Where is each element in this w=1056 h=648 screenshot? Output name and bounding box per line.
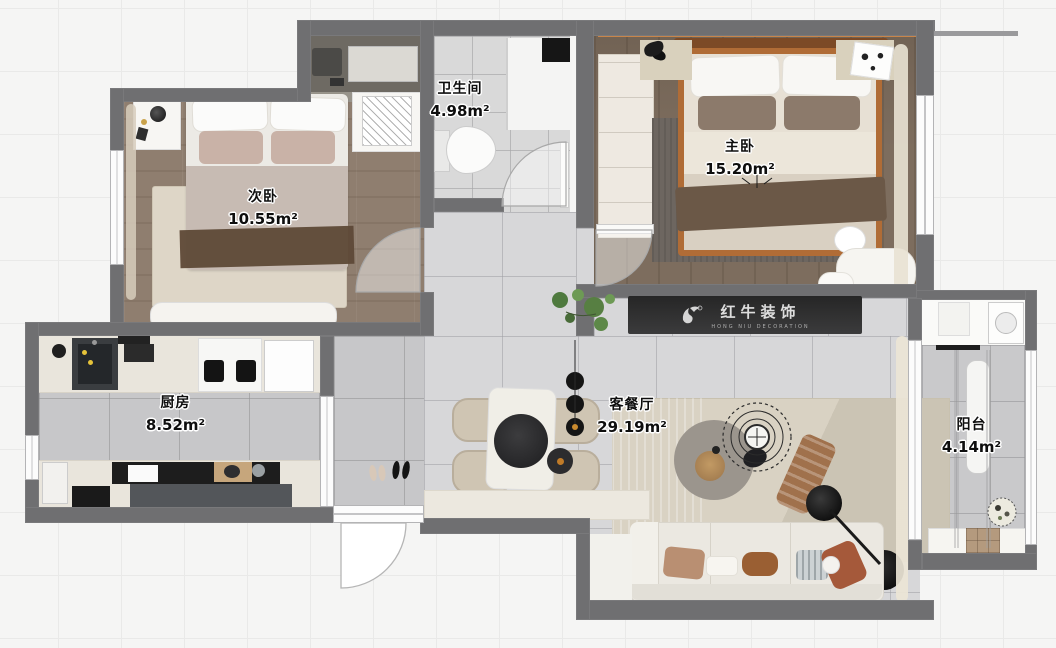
- wall-master-left: [576, 20, 594, 228]
- wall-balcony-top: [916, 290, 1037, 300]
- dishwasher: [130, 484, 292, 507]
- faucet: [92, 340, 97, 345]
- wall-balcony-divider-upper: [908, 298, 922, 340]
- entry-corridor-floor: [334, 336, 424, 518]
- room-name: 阳台: [914, 418, 1029, 432]
- shower-corner-unit: [542, 38, 570, 62]
- wall-kitchen-left: [25, 322, 39, 523]
- bed-pillow: [784, 96, 860, 130]
- room-name: 厨房: [118, 396, 233, 410]
- wall-kitchen-right: [320, 336, 334, 396]
- dining-table: [494, 414, 548, 468]
- kitchen-appliance: [72, 486, 110, 507]
- brand-watermark: 红牛装饰 HONG NIU DECORATION: [680, 301, 809, 330]
- curtain: [896, 336, 908, 602]
- decor-item: [82, 350, 87, 355]
- tv-console: 红牛装饰 HONG NIU DECORATION: [628, 296, 862, 334]
- door-arc-entry: [341, 523, 406, 588]
- room-area: 15.20m²: [680, 162, 800, 177]
- balcony-shelf: [936, 345, 980, 350]
- shoe-cabinet: [424, 490, 650, 520]
- wall-balcony-divider-lower: [908, 540, 922, 570]
- room-label-balcony: 阳台 4.14m²: [914, 418, 1029, 455]
- entry-door-frame: [333, 505, 424, 523]
- room-area: 4.14m²: [914, 440, 1029, 455]
- room-label-bathroom: 卫生间 4.98m²: [400, 82, 520, 119]
- door-leaf: [560, 142, 569, 208]
- decor-item: [141, 119, 147, 125]
- door-leaf: [596, 224, 654, 234]
- curtain: [894, 44, 908, 294]
- table-lamp: [150, 106, 166, 122]
- burner: [204, 360, 224, 382]
- room-area: 10.55m²: [203, 212, 323, 227]
- room-label-second-bedroom: 次卧 10.55m²: [203, 190, 323, 227]
- bull-logo-icon: [680, 304, 704, 326]
- watermark-subtitle: HONG NIU DECORATION: [711, 324, 809, 330]
- curtain: [126, 104, 136, 300]
- room-label-kitchen: 厨房 8.52m²: [118, 396, 233, 433]
- kettle: [224, 465, 240, 478]
- kitchen-sliding-door: [320, 396, 334, 507]
- master-door-gap: [576, 228, 594, 288]
- room-label-master-bedroom: 主卧 15.20m²: [680, 140, 800, 177]
- room-name: 卫生间: [400, 82, 520, 96]
- wall-kitchen-top: [25, 322, 434, 336]
- decor-item: [712, 446, 720, 454]
- fridge: [264, 340, 314, 392]
- hallway-floor: [424, 212, 576, 336]
- utility-chair: [312, 48, 342, 76]
- appliance-panel: [128, 465, 158, 482]
- window-master: [916, 95, 934, 235]
- bowl: [252, 464, 265, 477]
- floor-plan: 红牛装饰 HONG NIU DECORATION 卫生间 4.98m² 主卧 1…: [0, 0, 1056, 648]
- bed-pillow: [698, 96, 776, 130]
- wooden-box: [966, 528, 1000, 553]
- bed-pillow: [689, 54, 780, 97]
- bed-pillow: [199, 131, 263, 164]
- wall-second-bedroom-right: [420, 20, 434, 228]
- washer-drum: [995, 312, 1017, 334]
- wall-stub-line: [934, 31, 1018, 36]
- entry-light-floor: [590, 534, 632, 600]
- room-area: 29.19m²: [572, 420, 692, 435]
- wall-living-bottom: [576, 600, 934, 620]
- balcony-cabinet: [938, 302, 970, 336]
- wall-second-bedroom-right-lower: [420, 292, 434, 336]
- utility-table: [348, 46, 418, 82]
- room-label-living-dining: 客餐厅 29.19m²: [572, 398, 692, 435]
- window-second-bedroom: [110, 150, 124, 265]
- room-name: 次卧: [203, 190, 323, 204]
- wall-second-bedroom-top: [110, 88, 310, 102]
- room-area: 4.98m²: [400, 104, 520, 119]
- room-area: 8.52m²: [118, 418, 233, 433]
- watermark-brand: 红牛装饰: [720, 301, 800, 322]
- arc-lamp-head: [806, 485, 842, 521]
- window-kitchen: [25, 435, 39, 480]
- jar-set: [42, 462, 68, 504]
- wall-utility-left: [297, 20, 311, 102]
- dog-picture: [850, 41, 894, 80]
- bed-throw: [180, 226, 355, 269]
- wall-kitchen-bottom: [25, 507, 337, 523]
- kitchen-appliance: [124, 344, 154, 362]
- burner: [236, 360, 256, 382]
- wall-top: [297, 20, 935, 36]
- watermark-text: 红牛装饰 HONG NIU DECORATION: [711, 301, 809, 330]
- wall-balcony-bottom: [922, 553, 1037, 570]
- decor-item: [88, 360, 93, 365]
- room-name: 客餐厅: [572, 398, 692, 412]
- sofa-pillow: [706, 556, 738, 576]
- decor-ball: [822, 556, 840, 574]
- kettle: [52, 344, 66, 358]
- room-name: 主卧: [680, 140, 800, 154]
- pendant-lamp: [566, 372, 584, 390]
- decor-item: [330, 78, 344, 86]
- sofa-pillow: [663, 546, 706, 580]
- bed-pillow: [271, 131, 335, 164]
- decor-item: [557, 458, 564, 465]
- wall-bathroom-bottom: [434, 198, 504, 212]
- sofa-pillow: [742, 552, 778, 576]
- wardrobe: [598, 54, 654, 238]
- wall-dining-bottom: [420, 518, 590, 534]
- coffee-table: [695, 451, 725, 481]
